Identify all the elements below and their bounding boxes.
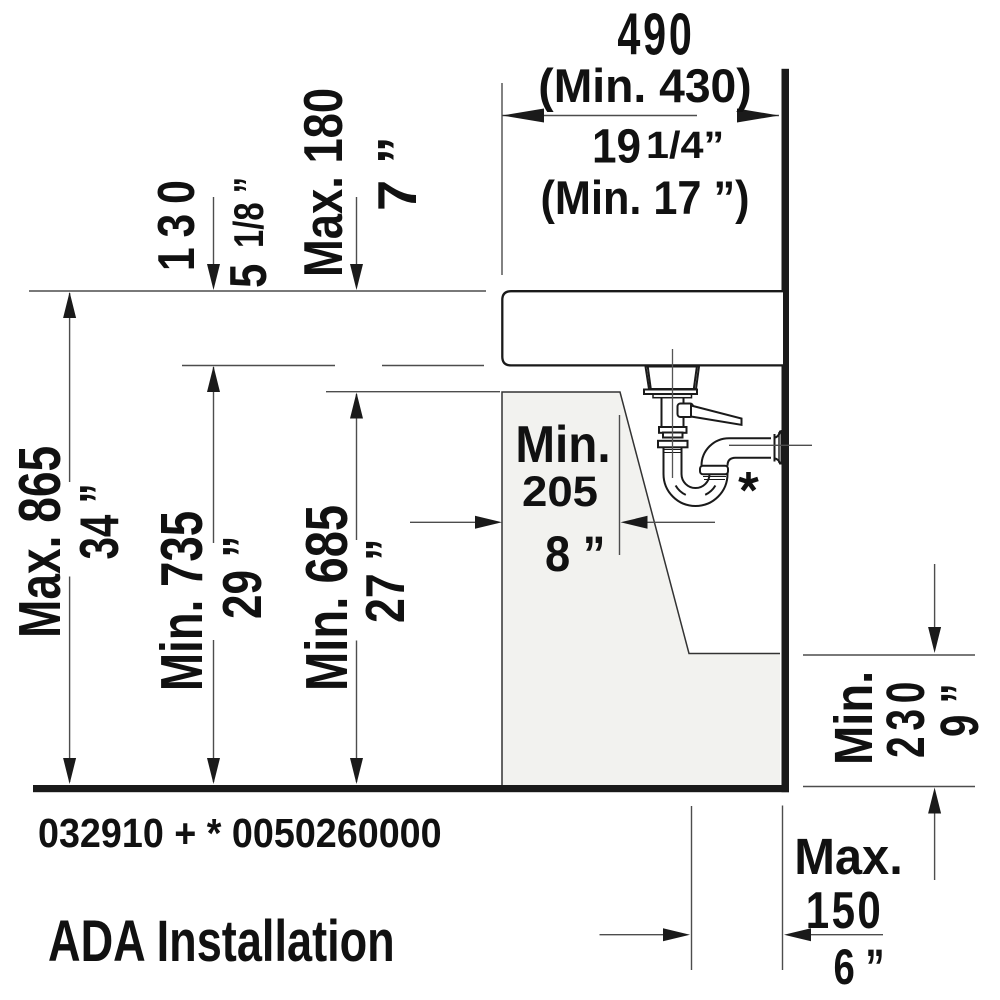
svg-text:8 ”: 8 ” (545, 527, 605, 583)
svg-text:1/4”: 1/4” (646, 125, 724, 167)
svg-text:Min.: Min. (515, 415, 610, 473)
svg-text:130: 130 (148, 170, 206, 271)
svg-text:(Min. 17 ”): (Min. 17 ”) (541, 171, 750, 224)
svg-text:Max.: Max. (794, 828, 903, 885)
svg-text:6 ”: 6 ” (834, 940, 885, 995)
svg-text:9 ”: 9 ” (930, 683, 990, 737)
svg-text:Min. 685: Min. 685 (295, 505, 360, 691)
svg-text:Min. 735: Min. 735 (149, 511, 215, 691)
svg-text:5: 5 (221, 264, 278, 288)
svg-text:ADA Installation: ADA Installation (48, 910, 395, 975)
svg-text:1/8 ”: 1/8 ” (225, 177, 272, 248)
svg-text:230: 230 (875, 676, 936, 758)
svg-text:150: 150 (806, 882, 884, 940)
svg-text:205: 205 (522, 468, 598, 516)
svg-text:(Min. 430): (Min. 430) (538, 60, 751, 112)
svg-text:29 ”: 29 ” (211, 536, 273, 619)
svg-text:27 ”: 27 ” (355, 538, 416, 623)
svg-text:19: 19 (592, 119, 641, 173)
svg-text:34 ”: 34 ” (69, 483, 131, 559)
svg-text:032910 + * 0050260000: 032910 + * 0050260000 (38, 811, 442, 857)
svg-text:Max. 865: Max. 865 (8, 446, 74, 638)
svg-text:7 ”: 7 ” (366, 136, 427, 211)
svg-text:490: 490 (617, 1, 694, 67)
svg-text:Max. 180: Max. 180 (292, 88, 354, 277)
